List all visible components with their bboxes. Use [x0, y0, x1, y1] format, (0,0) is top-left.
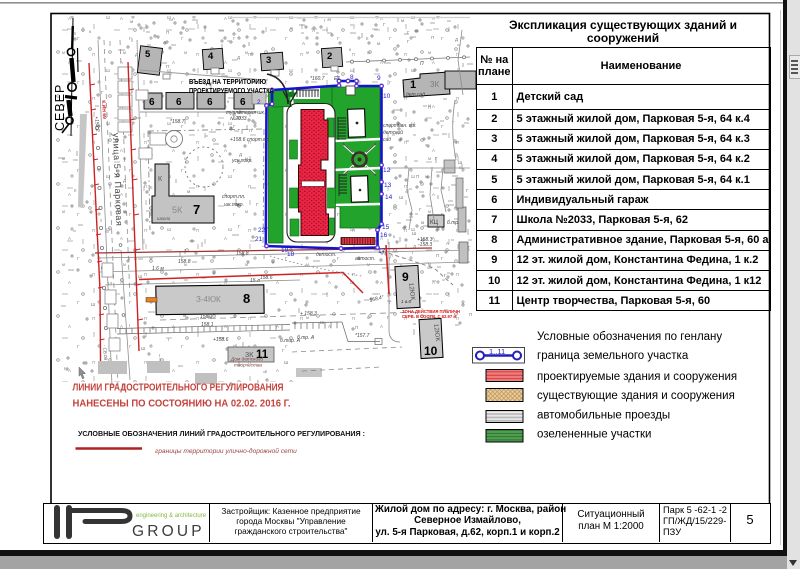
svg-text:Ш: Ш — [91, 302, 95, 307]
svg-text:З-4ЮК: З-4ЮК — [196, 295, 221, 304]
svg-text:Ш: Ш — [141, 346, 145, 351]
svg-text:границы территории улично-доро: границы территории улично-дорожной сети — [155, 447, 297, 455]
svg-text:158.1: 158.1 — [201, 322, 214, 328]
svg-text:уск.покр.: уск.покр. — [231, 158, 253, 164]
svg-text:Условные обозначения по генлан: Условные обозначения по генлану — [537, 331, 722, 343]
svg-text:7: 7 — [193, 202, 200, 217]
svg-text:+ 158.3: + 158.3 — [300, 311, 317, 317]
svg-text:5К: 5К — [172, 205, 183, 215]
svg-text:Дом детского: Дом детского — [230, 357, 264, 363]
svg-text:б.тр. А: б.тр. А — [297, 335, 315, 341]
svg-text:GROUP: GROUP — [132, 523, 205, 540]
svg-text:П: П — [166, 64, 169, 69]
svg-text:шк.покр.: шк.покр. — [224, 202, 244, 208]
svg-text:*160.7: *160.7 — [310, 76, 325, 82]
svg-text:22: 22 — [258, 227, 266, 234]
svg-text:158.8: 158.8 — [178, 259, 191, 265]
svg-text:14: 14 — [385, 194, 393, 201]
svg-text:КЦ: КЦ — [430, 220, 438, 226]
svg-text:-158.3: -158.3 — [418, 242, 432, 248]
svg-text:СЕВЕР: СЕВЕР — [53, 84, 67, 131]
svg-text:II: II — [366, 36, 369, 41]
svg-text:сад: сад — [383, 137, 391, 143]
svg-text:5: 5 — [145, 49, 151, 60]
svg-text:I: I — [64, 366, 65, 371]
svg-text:спортивн. п.к.: спортивн. п.к. — [383, 123, 417, 129]
svg-text:2: 2 — [327, 51, 332, 62]
svg-text:I: I — [159, 353, 160, 358]
svg-text:6: 6 — [207, 97, 213, 108]
svg-text:м: м — [421, 220, 424, 225]
svg-text:II: II — [74, 188, 77, 193]
svg-text:школа: школа — [157, 216, 171, 221]
svg-text:П: П — [428, 105, 431, 110]
svg-text:1.6 м: 1.6 м — [152, 266, 164, 272]
svg-text:детост.: детост. — [316, 252, 336, 258]
svg-text:9: 9 — [402, 270, 409, 284]
svg-text:1..11: 1..11 — [489, 347, 505, 356]
svg-text:I: I — [168, 337, 169, 342]
svg-text:П: П — [420, 61, 424, 67]
svg-text:4: 4 — [208, 51, 214, 62]
svg-text:ПРОЕКТИРУЕМОГО УЧАСТКА: ПРОЕКТИРУЕМОГО УЧАСТКА — [189, 86, 274, 95]
svg-text:Ш: Ш — [399, 195, 403, 200]
svg-text:П: П — [166, 30, 169, 35]
svg-text:детский: детский — [383, 129, 403, 136]
svg-text:I: I — [324, 18, 325, 23]
svg-text:творчества: творчества — [234, 364, 262, 369]
svg-text:10: 10 — [383, 93, 391, 100]
svg-text:21: 21 — [255, 236, 263, 243]
svg-text:16: 16 — [380, 232, 388, 239]
svg-text:158.6: 158.6 — [260, 275, 273, 281]
svg-text:17: 17 — [378, 248, 386, 255]
svg-text:м: м — [130, 19, 133, 24]
svg-text:П: П — [469, 312, 472, 317]
svg-text:I: I — [223, 122, 224, 127]
svg-text:существующие здания и сооружен: существующие здания и сооружения — [537, 390, 735, 402]
svg-text:НАНЕСЕНЫ ПО СОСТОЯНИЮ НА 02.02: НАНЕСЕНЫ ПО СОСТОЯНИЮ НА 02.02. 2016 Г. — [73, 398, 291, 410]
svg-text:Ш: Ш — [138, 274, 142, 279]
svg-text:1 в.8: 1 в.8 — [401, 299, 412, 304]
svg-text:П: П — [436, 253, 439, 258]
svg-text:15: 15 — [382, 224, 390, 231]
svg-text:ВЪЕЗД НА ТЕРРИТОРИЮ: ВЪЕЗД НА ТЕРРИТОРИЮ — [189, 77, 266, 86]
svg-text:автост.: автост. — [355, 256, 375, 262]
svg-text:№2033: №2033 — [230, 116, 247, 122]
svg-text:158.8: 158.8 — [236, 251, 249, 257]
svg-text:Ш: Ш — [284, 360, 288, 365]
svg-text:Ш: Ш — [458, 160, 462, 165]
svg-text:13: 13 — [384, 182, 392, 189]
svg-text:проектируемые здания и сооруже: проектируемые здания и сооружения — [537, 371, 737, 383]
svg-text:19: 19 — [281, 247, 289, 254]
svg-text:П: П — [431, 35, 434, 40]
svg-text:6: 6 — [176, 97, 182, 108]
svg-text:3: 3 — [266, 55, 271, 66]
svg-text:П: П — [249, 128, 252, 133]
svg-text:8: 8 — [350, 74, 354, 81]
svg-text:П: П — [416, 174, 419, 179]
svg-text:Ш: Ш — [412, 231, 416, 236]
svg-text:озелененные участки: озелененные участки — [537, 429, 651, 441]
svg-text:I: I — [90, 191, 91, 196]
svg-text:9: 9 — [377, 75, 381, 82]
svg-text:15 л: 15 л — [250, 278, 260, 284]
svg-text:автомобильные проезды: автомобильные проезды — [537, 410, 670, 422]
svg-text:УСЛОВНЫЕ ОБОЗНАЧЕНИЯ ЛИНИЙ ГРА: УСЛОВНЫЕ ОБОЗНАЧЕНИЯ ЛИНИЙ ГРАДОСТРОИТЕЛ… — [78, 429, 365, 438]
svg-text:граница земельного участка: граница земельного участка — [537, 350, 689, 362]
svg-text:м: м — [425, 174, 428, 179]
svg-text:м: м — [401, 18, 404, 23]
svg-text:158.1: 158.1 — [200, 314, 213, 320]
svg-text:8: 8 — [243, 291, 250, 306]
svg-text:engineering & architecture: engineering & architecture — [136, 513, 207, 519]
svg-text:6: 6 — [240, 97, 246, 108]
svg-text:I: I — [129, 323, 130, 328]
svg-text:СЕРВ. В СООТВ. С 62.97 м: СЕРВ. В СООТВ. С 62.97 м — [402, 314, 456, 319]
svg-text:6: 6 — [149, 97, 155, 108]
svg-text:12: 12 — [383, 167, 391, 174]
svg-text:м: м — [187, 189, 190, 194]
svg-text:2: 2 — [257, 99, 261, 106]
svg-text:м: м — [377, 41, 380, 46]
svg-text:ЛИНИИ ГРАДОСТРОИТЕЛЬНОГО РЕГУЛ: ЛИНИИ ГРАДОСТРОИТЕЛЬНОГО РЕГУЛИРОВАНИЯ — [73, 382, 284, 394]
svg-text:П: П — [355, 325, 358, 330]
svg-text:1: 1 — [410, 79, 416, 91]
svg-text:дет.сад: дет.сад — [406, 92, 425, 98]
svg-text:К.ИН 69: К.ИН 69 — [100, 100, 107, 119]
svg-text:+158.6 спорт.пк: +158.6 спорт.пк — [230, 137, 269, 143]
svg-text:3К: 3К — [430, 80, 439, 89]
svg-text:б.тр.: б.тр. — [447, 220, 459, 226]
svg-text:Е1: Е1 — [334, 76, 340, 82]
svg-text:спорт.пл.: спорт.пл. — [222, 194, 245, 200]
svg-text:*157.7: *157.7 — [355, 333, 370, 339]
svg-text:II: II — [150, 185, 153, 190]
svg-text:*158.7: *158.7 — [170, 119, 185, 125]
svg-text:+158.6: +158.6 — [213, 337, 229, 343]
svg-text:10: 10 — [424, 344, 438, 358]
